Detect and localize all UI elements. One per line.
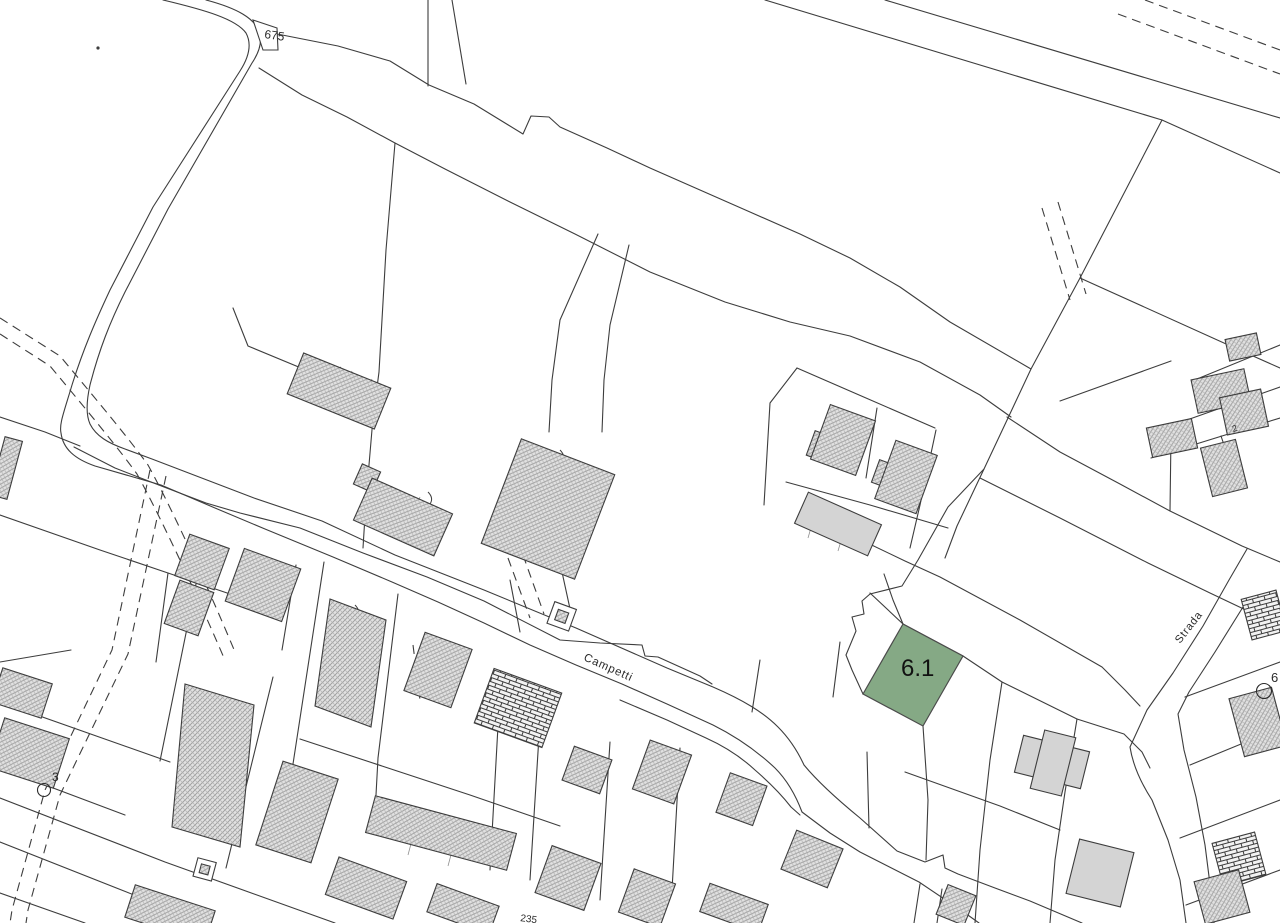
svg-text:6.1: 6.1 (901, 655, 934, 682)
svg-text:675: 675 (264, 27, 286, 44)
svg-text:235: 235 (520, 913, 538, 923)
svg-text:6: 6 (1271, 670, 1278, 685)
svg-text:3: 3 (52, 770, 59, 784)
